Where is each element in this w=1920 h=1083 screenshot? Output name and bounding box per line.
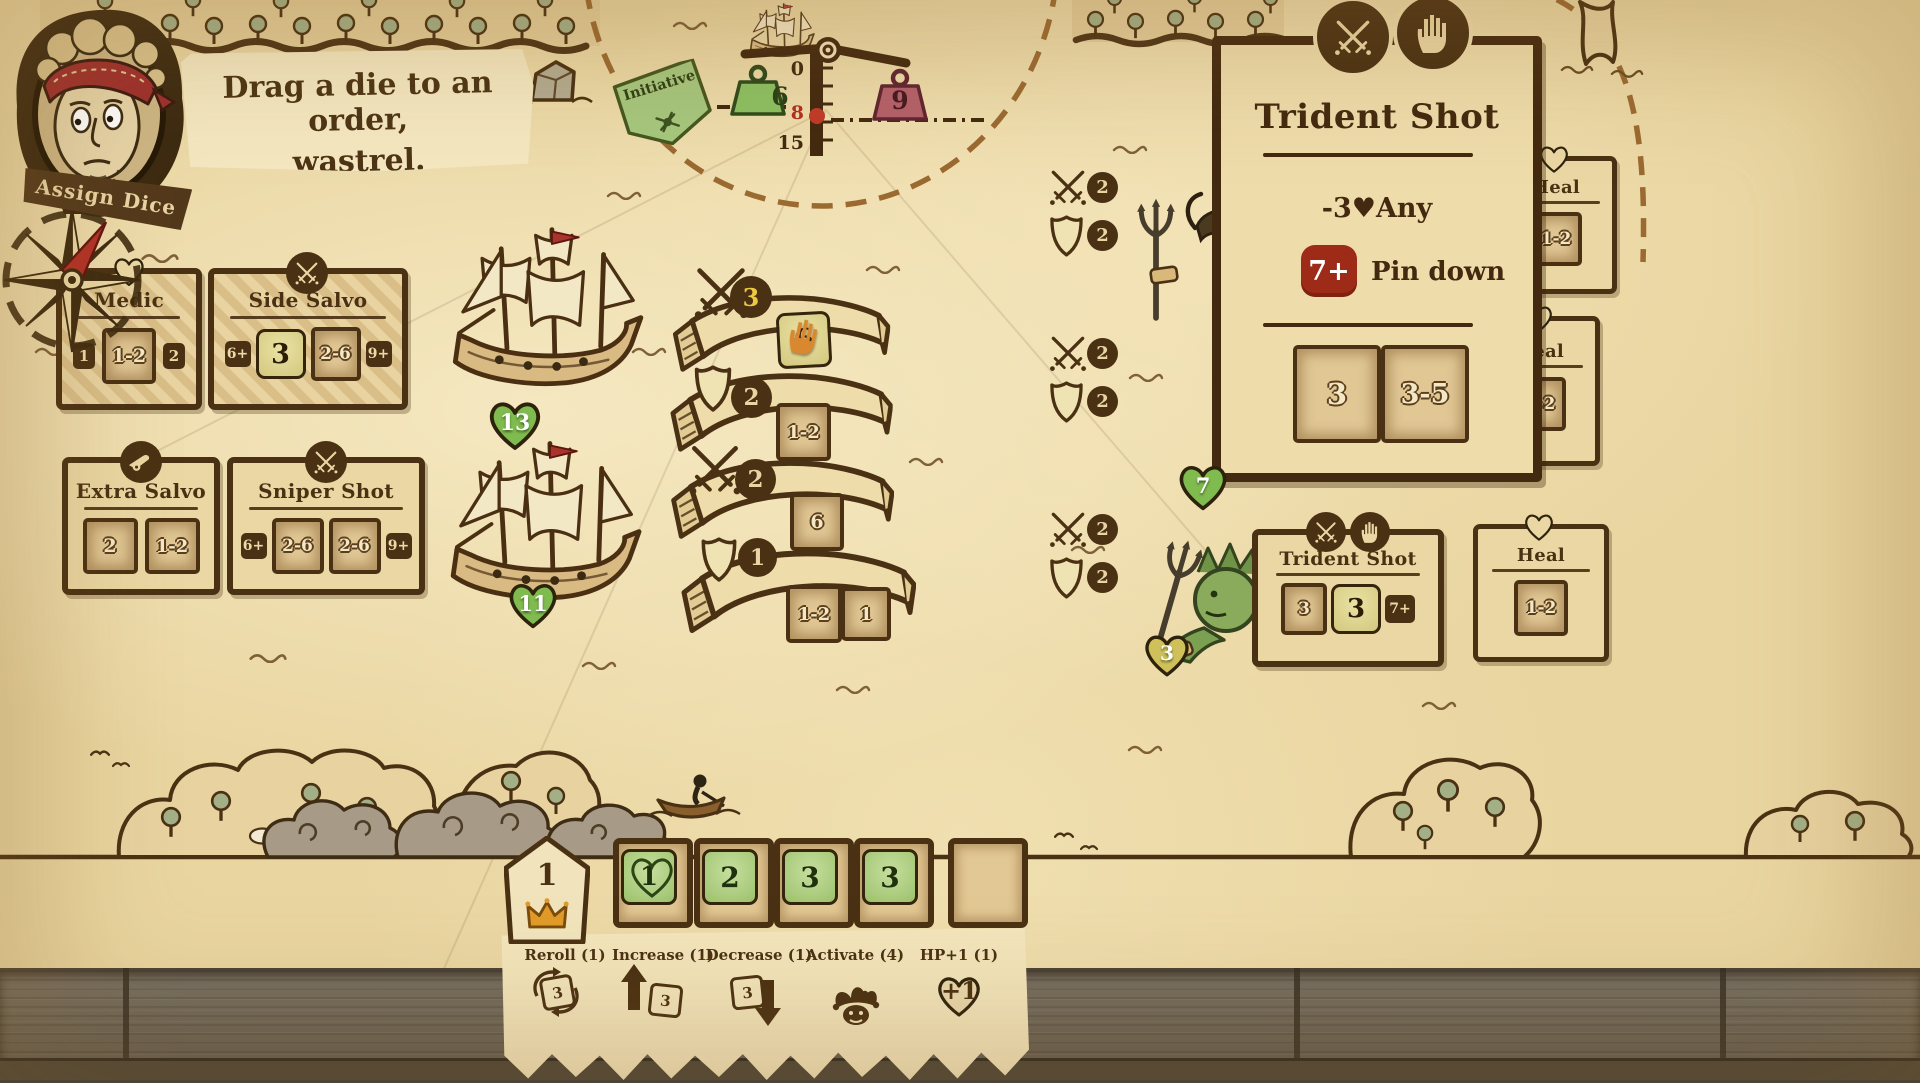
order-card-heal-bottom[interactable]: Heal 1-2 (1473, 524, 1609, 662)
hand-icon (1350, 512, 1390, 552)
enemy-defense: 2 (1087, 386, 1118, 417)
ship-hp-heart: 13 (486, 398, 544, 452)
jester-icon (829, 978, 881, 1028)
die-slot-1[interactable]: 1 (613, 838, 693, 928)
die-slot[interactable]: 1-2 (145, 518, 200, 574)
die-slot[interactable]: 1-2 (786, 585, 842, 643)
scale-right-weight: 9 (864, 86, 936, 115)
swords-icon (1046, 165, 1090, 209)
requirement-badge: 9+ (386, 533, 412, 559)
swords-icon (1313, 0, 1393, 77)
detail-title: Trident Shot (1221, 97, 1533, 137)
detail-effect: -3♥Any (1221, 193, 1533, 224)
enemy-defense: 2 (1087, 562, 1118, 593)
scale-tick-0: 0 (780, 58, 804, 80)
attack-count-badge: 3 (730, 276, 772, 318)
heart-icon (1523, 512, 1555, 542)
die-slot-empty[interactable] (948, 838, 1028, 928)
requirement-badge: 6+ (241, 533, 267, 559)
order-card-sniper-shot[interactable]: Sniper Shot 6+ 2-6 2-6 9+ (227, 457, 425, 595)
defense-count-badge: 1 (738, 538, 777, 577)
scale-tick-15: 15 (766, 132, 804, 154)
action-hp[interactable]: HP+1 (1) +1 (911, 946, 1007, 964)
enemy-hp: 7 (1196, 473, 1211, 502)
hand-icon (1393, 0, 1473, 73)
tray-die-3[interactable]: 3 (782, 849, 838, 905)
crown-icon (524, 898, 570, 931)
die-slot-2[interactable]: 2 (694, 838, 774, 928)
order-card-side-salvo[interactable]: Side Salvo 6+ 3 2-6 9+ (208, 268, 408, 410)
enemy-hp: 3 (1160, 641, 1174, 669)
defense-count-badge: 2 (731, 377, 772, 418)
whale-tail-icon (1562, 2, 1642, 77)
die-slot-4[interactable]: 3 (854, 838, 934, 928)
game-map: 6 9 0 8 15 Initiative (0, 0, 1920, 1080)
requirement-badge: 9+ (366, 341, 392, 367)
turn-number: 1 (504, 858, 590, 893)
assigned-die[interactable]: 3 (1331, 584, 1381, 634)
top-tree-border (40, 0, 1286, 50)
enemy-defense: 2 (1087, 220, 1118, 251)
scale-tick-8: 8 (780, 102, 804, 124)
assigned-die[interactable]: 3 (256, 329, 306, 379)
clouds (264, 793, 671, 857)
attack-count-badge: 2 (735, 459, 776, 500)
message-line-1: Drag a die to an order, (181, 64, 534, 141)
swords-icon (286, 252, 328, 294)
action-reroll[interactable]: Reroll (1) 3 (517, 946, 613, 964)
action-tray: Reroll (1) 3 Increase (1) 3 Decrease (1)… (499, 928, 1029, 1080)
requirement-badge: 2 (163, 343, 185, 369)
ship-hp: 13 (500, 410, 531, 440)
action-decrease[interactable]: Decrease (1) 3 (711, 946, 807, 964)
enemy-attack: 2 (1087, 172, 1118, 203)
shield-icon (1049, 556, 1084, 599)
die-slot[interactable]: 2-6 (272, 518, 324, 574)
increase-die-icon: 3 (637, 976, 682, 1017)
die-slot-3[interactable]: 3 (774, 838, 854, 928)
action-increase[interactable]: Increase (1) 3 (615, 946, 711, 964)
die-slot[interactable]: 3 (1293, 345, 1381, 443)
order-title: Trident Shot (1258, 548, 1438, 570)
tray-die-2[interactable]: 2 (702, 849, 758, 905)
advisor-message: Drag a die to an order, wastrel. (181, 46, 535, 175)
die-slot[interactable]: 3 (1281, 583, 1327, 635)
die-slot[interactable]: 1 (841, 587, 891, 641)
ship-hp: 11 (518, 591, 547, 620)
shield-icon (1049, 214, 1084, 257)
die-slot[interactable]: 2-6 (329, 518, 381, 574)
bush-cluster-right (1350, 760, 1911, 857)
cannon-icon (120, 441, 162, 483)
swords-icon (305, 441, 347, 483)
threshold-badge: 7+ (1301, 245, 1357, 297)
turn-marker: 1 (504, 836, 590, 944)
enemy-hp-heart: 3 (1142, 632, 1192, 678)
enemy-attack: 2 (1087, 338, 1118, 369)
heart-icon (1538, 144, 1570, 174)
player-ship-1 (440, 216, 660, 426)
decrease-die-icon: 3 (731, 976, 764, 1009)
order-title: Heal (1478, 545, 1604, 566)
enemy-hp-heart: 7 (1176, 462, 1230, 512)
swords-icon (1046, 507, 1090, 551)
reroll-die-icon: 3 (541, 976, 574, 1009)
tray-die-1[interactable]: 1 (621, 849, 677, 905)
enemy-attack: 2 (1087, 514, 1118, 545)
initiative-scale: 6 9 0 8 15 (700, 20, 1000, 170)
detail-card-trident-shot: Trident Shot -3♥Any 7+ Pin down 3 3-5 (1212, 36, 1542, 482)
order-card-extra-salvo[interactable]: Extra Salvo 2 1-2 (62, 457, 220, 595)
hp-plus-icon: +1 (935, 974, 983, 1022)
die-slot[interactable]: 1-2 (1514, 580, 1568, 636)
requirement-badge: 7+ (1385, 595, 1415, 623)
threshold-effect: Pin down (1371, 257, 1505, 287)
ship-hp-heart: 11 (506, 580, 560, 630)
rowboat (648, 775, 740, 818)
shield-icon (693, 364, 733, 412)
shield-icon (700, 536, 738, 582)
die-slot[interactable]: 2 (83, 518, 138, 574)
action-activate[interactable]: Activate (4) (807, 946, 903, 964)
requirement-badge: 6+ (225, 341, 251, 367)
swords-icon (1306, 512, 1346, 552)
tray-die-4[interactable]: 3 (862, 849, 918, 905)
die-slot[interactable]: 3-5 (1381, 345, 1469, 443)
die-slot[interactable]: 2-6 (311, 327, 361, 381)
shield-icon (1049, 380, 1084, 423)
swords-icon (1046, 331, 1090, 375)
order-card-trident-shot[interactable]: Trident Shot 3 3 7+ (1252, 529, 1444, 667)
